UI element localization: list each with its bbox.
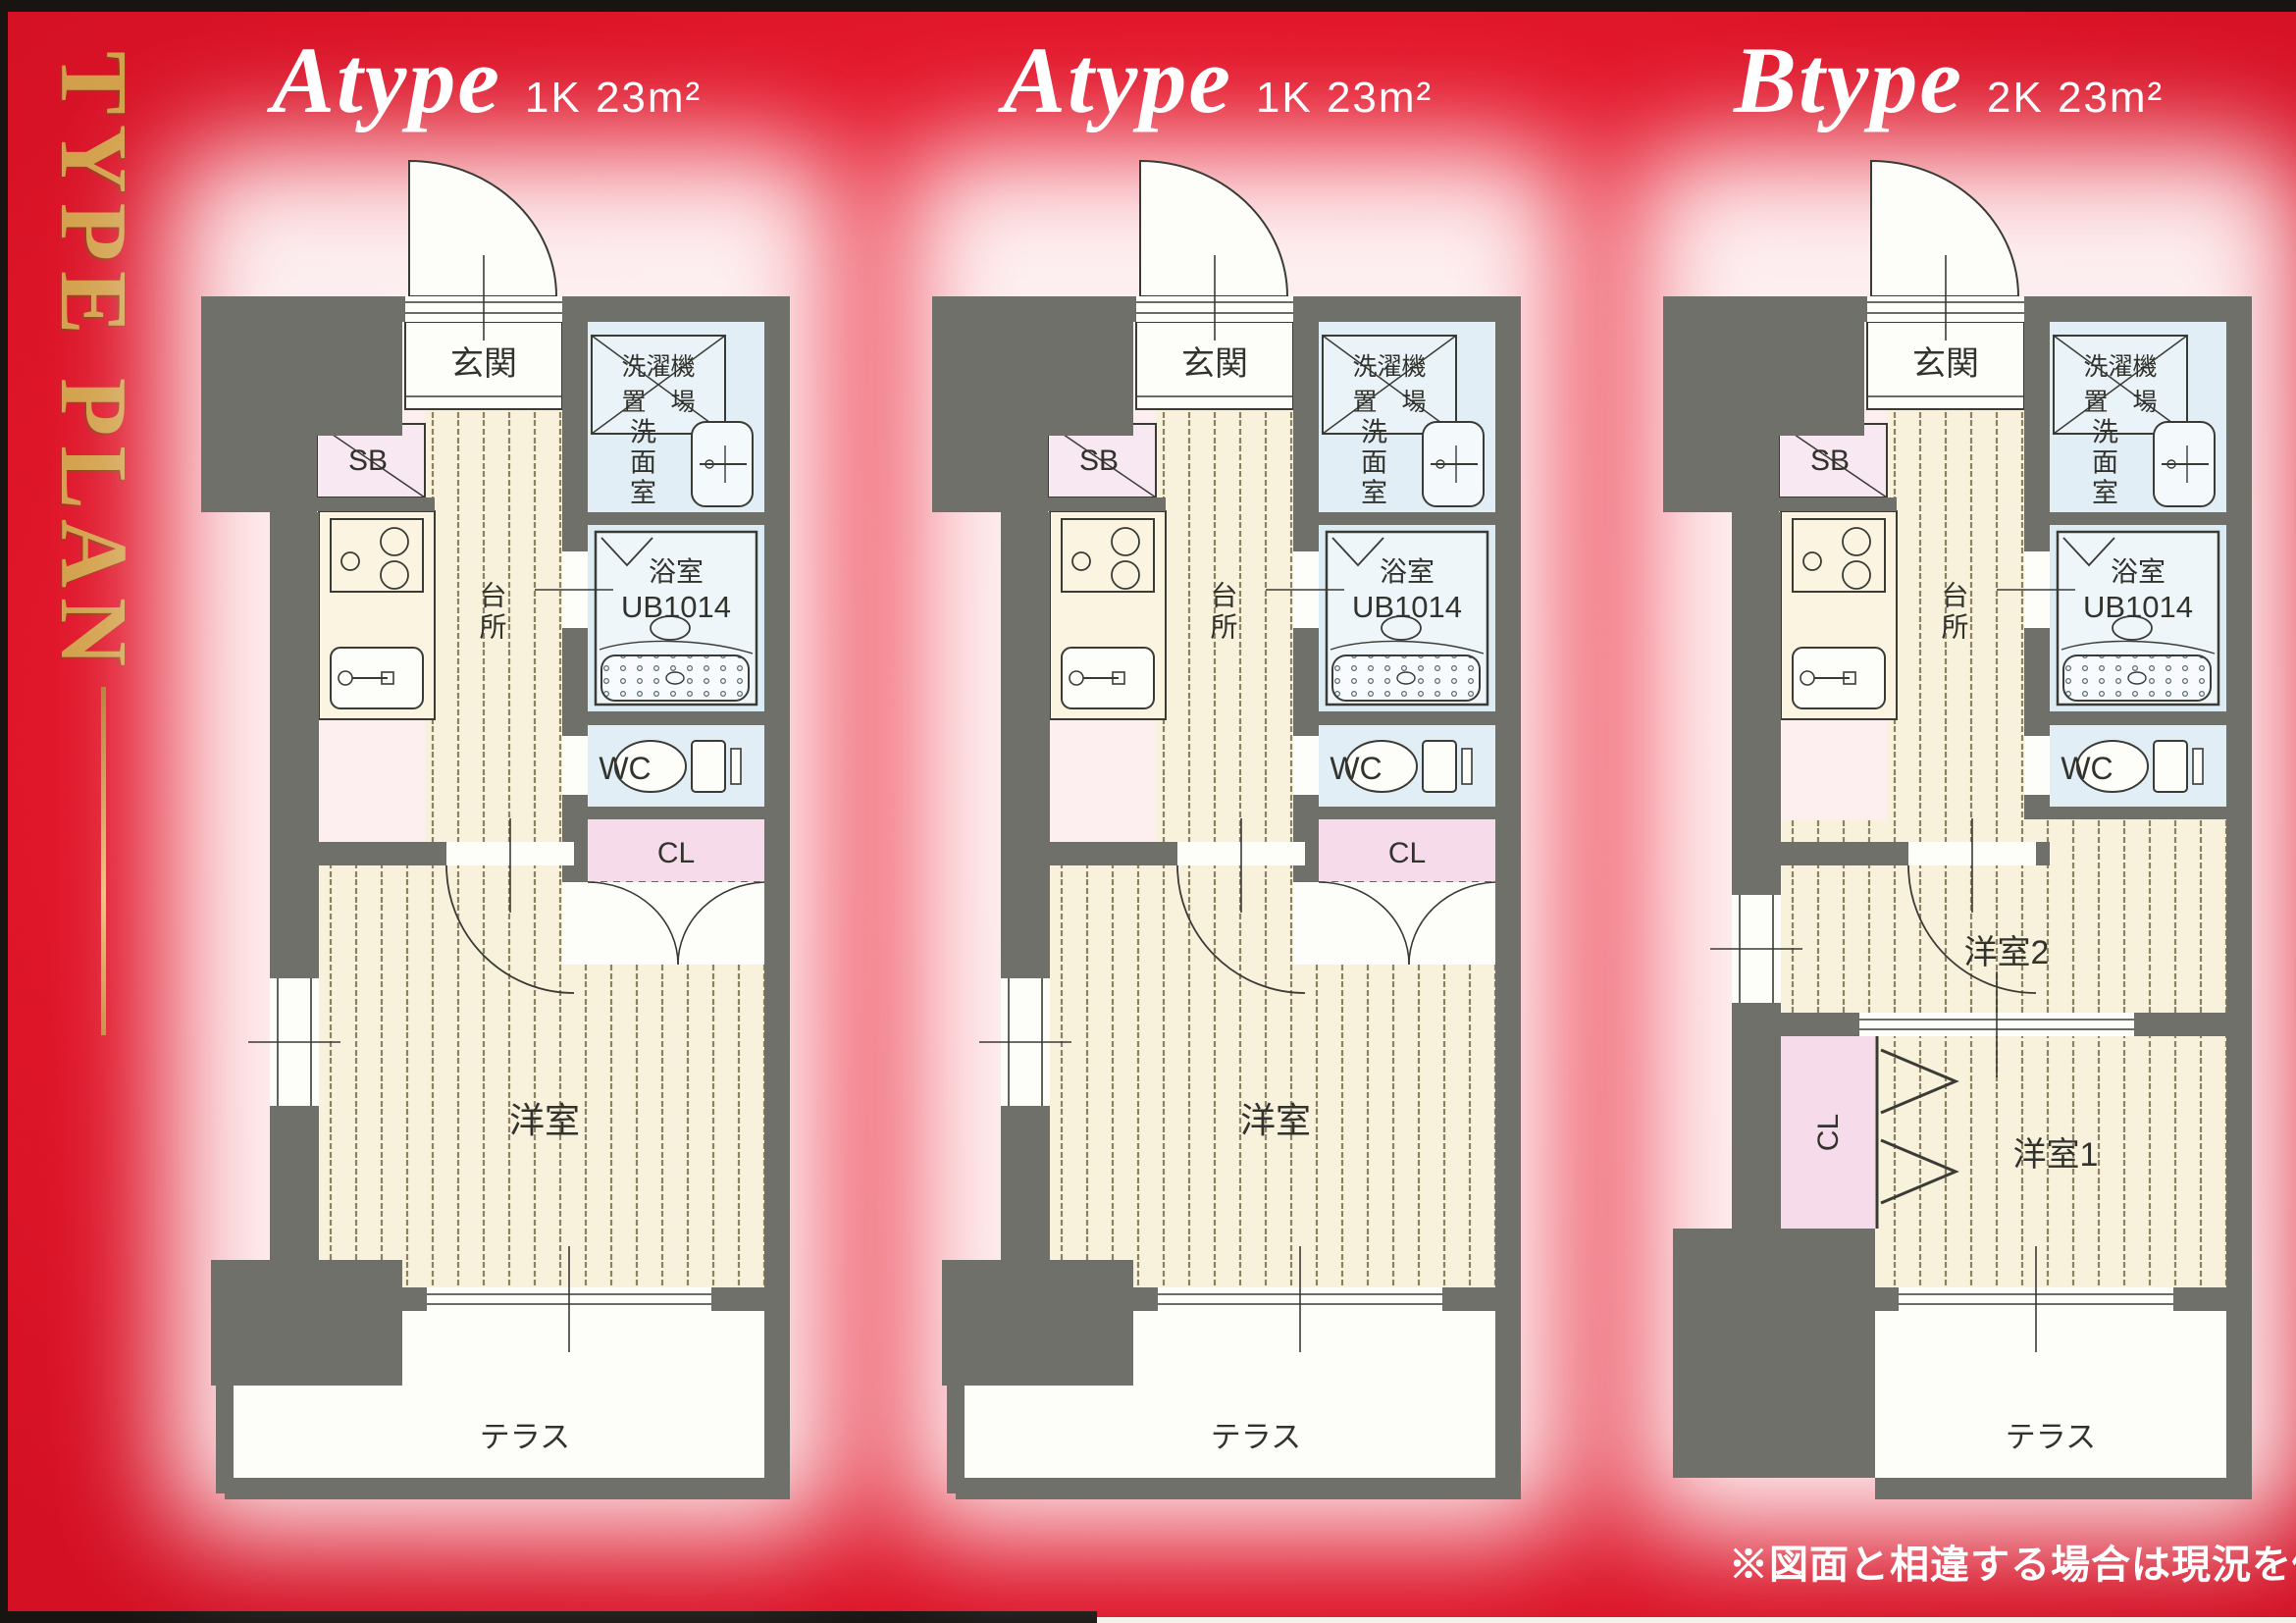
floor-plan-btype: Btype 2K 23m²: [1663, 33, 2271, 1589]
closet-label: CL: [1812, 1114, 1845, 1151]
plan-title: Btype 2K 23m²: [1663, 33, 2271, 137]
sink-icon: [331, 648, 423, 708]
bath-model-label: UB1014: [621, 590, 731, 624]
room2-label: 洋室2: [1964, 934, 2050, 971]
entrance-door-arc-icon: [409, 161, 556, 296]
bath-label: 浴室: [649, 556, 704, 587]
closet-label: CL: [657, 837, 695, 869]
plan-spec: 1K 23m²: [1256, 74, 1433, 123]
wc-door-opening: [2024, 736, 2050, 795]
plan-name: Atype: [272, 33, 501, 128]
kitchen-label: 台所: [1939, 581, 1969, 644]
floor-plan-atype-2: Atype 1K 23m²: [932, 33, 1540, 1589]
terrace-label: テラス: [2006, 1420, 2096, 1454]
wc-label: WC: [599, 751, 651, 786]
bath-label: 浴室: [1380, 556, 1435, 587]
scan-edge-top: [0, 0, 2296, 12]
bath-model-label: UB1014: [1352, 590, 1462, 624]
living-label: 洋室: [509, 1100, 580, 1140]
washer-label-1: 洗濯機: [2083, 353, 2157, 381]
sink-icon: [1062, 648, 1154, 708]
stove-icon: [1062, 519, 1154, 592]
washroom-label: 洗面室: [1357, 417, 1386, 508]
washer-label-2: 置 場: [2083, 389, 2157, 416]
gold-rule: [101, 687, 106, 1035]
washbasin-icon: [692, 422, 753, 506]
washer-label-1: 洗濯機: [1352, 353, 1426, 381]
kitchen-label: 台所: [1208, 581, 1238, 644]
shoebox-label: SB: [348, 445, 388, 477]
bathtub-icon: [2063, 655, 2211, 701]
closet-door-area: [562, 882, 764, 965]
kitchen-counter: [319, 511, 435, 719]
washer-area: [592, 336, 725, 434]
living-label: 洋室: [1240, 1100, 1311, 1140]
washroom-label: 洗面室: [2088, 417, 2117, 508]
bathtub-icon: [1332, 655, 1480, 701]
kitchen-label: 台所: [477, 581, 507, 644]
floor-plan-drawing: 玄関 SB 洗濯機 置 場 洗面室 浴室 UB1014 WC 台所 洋室2 洋室…: [1663, 139, 2252, 1543]
entrance-label: 玄関: [1181, 345, 1248, 383]
terrace-label: テラス: [480, 1420, 570, 1454]
plan-name: Btype: [1734, 33, 1963, 128]
bathtub-icon: [601, 655, 749, 701]
plan-spec: 1K 23m²: [525, 74, 702, 123]
washbasin-icon: [2154, 422, 2215, 506]
shoebox-label: SB: [1079, 445, 1119, 477]
wc-label: WC: [2061, 751, 2113, 786]
washer-label-2: 置 場: [1352, 389, 1426, 416]
washer-label-1: 洗濯機: [621, 353, 695, 381]
scan-edge-bottom-right: [1097, 1617, 2296, 1623]
closet-door-area: [1293, 882, 1495, 965]
entrance-door-arc-icon: [1140, 161, 1287, 296]
washer-area: [2054, 336, 2187, 434]
washer-label-2: 置 場: [621, 389, 695, 416]
washer-area: [1323, 336, 1456, 434]
floor-plan-drawing: 玄関 SB 洗濯機 置 場 洗面室 浴室 UB1014 WC CL 台所 洋室 …: [932, 139, 1521, 1543]
washbasin-icon: [1423, 422, 1484, 506]
scan-edge-left: [0, 0, 8, 1623]
bath-label: 浴室: [2111, 556, 2166, 587]
shoebox-label: SB: [1810, 445, 1850, 477]
floor-plan-atype-1: Atype 1K 23m²: [201, 33, 809, 1589]
plan-name: Atype: [1003, 33, 1232, 128]
kitchen-counter: [1050, 511, 1166, 719]
floor-plan-drawing: 玄関 SB 洗濯機 置 場 洗面室 浴室 UB1014 WC CL 台所 洋室 …: [201, 139, 790, 1543]
wc-label: WC: [1330, 751, 1382, 786]
closet-label: CL: [1388, 837, 1426, 869]
wc-door-opening: [562, 736, 588, 795]
entrance-door-arc-icon: [1871, 161, 2018, 296]
bath-model-label: UB1014: [2083, 590, 2193, 624]
entrance-label: 玄関: [450, 345, 517, 383]
washroom-label: 洗面室: [626, 417, 655, 508]
plan-title: Atype 1K 23m²: [201, 33, 809, 137]
kitchen-counter: [1781, 511, 1897, 719]
scan-edge-bottom: [0, 1611, 1097, 1623]
plan-spec: 2K 23m²: [1987, 74, 2164, 123]
page-title: TYPE PLAN: [39, 51, 148, 679]
entrance-label: 玄関: [1912, 345, 1979, 383]
stove-icon: [1793, 519, 1885, 592]
wc-door-opening: [1293, 736, 1319, 795]
plan-title: Atype 1K 23m²: [932, 33, 1540, 137]
terrace-label: テラス: [1211, 1420, 1301, 1454]
sink-icon: [1793, 648, 1885, 708]
stove-icon: [331, 519, 423, 592]
room1-label: 洋室1: [2013, 1136, 2099, 1174]
